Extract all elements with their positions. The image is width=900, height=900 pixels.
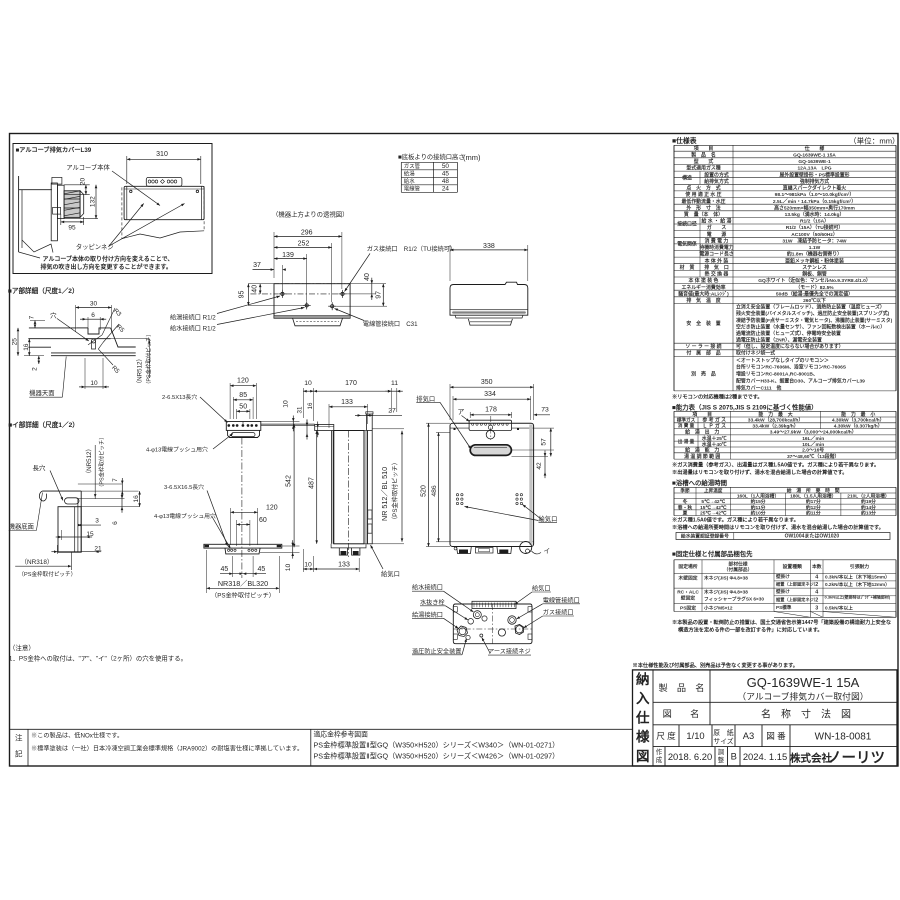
svg-text:配管カバーH33-K、据置台D30、アルコーブ排気カバーL3: 配管カバーH33-K、据置台D30、アルコーブ排気カバーL39 — [736, 378, 865, 385]
svg-text:過電流防止装置（ヒューズ式）、停電時安全装置: 過電流防止装置（ヒューズ式）、停電時安全装置 — [735, 330, 841, 337]
svg-text:2.0～16号: 2.0～16号 — [802, 447, 824, 454]
svg-text:固定場所: 固定場所 — [678, 563, 697, 570]
svg-text:2: 2 — [815, 582, 818, 588]
svg-text:2024. 1.15: 2024. 1.15 — [743, 751, 787, 762]
svg-text:296: 296 — [301, 230, 313, 237]
svg-text:40: 40 — [364, 273, 371, 281]
svg-text:構造: 構造 — [682, 174, 692, 181]
svg-text:給 湯 能 力: 給 湯 能 力 — [685, 447, 719, 454]
svg-text:機器天面: 機器天面 — [29, 388, 54, 397]
svg-text:10: 10 — [304, 561, 312, 568]
svg-text:取付けネジ袋一式: 取付けネジ袋一式 — [736, 350, 775, 357]
svg-text:項 目: 項 目 — [692, 411, 712, 418]
svg-text:製 品 名: 製 品 名 — [659, 682, 705, 693]
svg-text:（付属部品）: （付属部品） — [724, 566, 753, 573]
svg-text:6: 6 — [91, 312, 95, 319]
svg-text:A3: A3 — [743, 730, 754, 741]
svg-text:GQ-1639WE-1 15A: GQ-1639WE-1 15A — [747, 675, 860, 690]
svg-text:亜鉛メッキ鋼板・粉体塗装: 亜鉛メッキ鋼板・粉体塗装 — [785, 257, 844, 264]
svg-text:73: 73 — [541, 407, 549, 414]
svg-text:約11分: 約11分 — [751, 504, 766, 511]
svg-text:2018. 6.20: 2018. 6.20 — [668, 751, 712, 762]
svg-text:PS金枠標準設置Ⅱ型GQ（W350×H520）シリーズ＜W4: PS金枠標準設置Ⅱ型GQ（W350×H520）シリーズ＜W426＞（WN-01-… — [314, 752, 560, 761]
svg-text:型式適用ガス種: 型式適用ガス種 — [686, 165, 720, 172]
svg-text:作: 作 — [656, 747, 663, 756]
svg-text:GQ-1639WE-1 15A: GQ-1639WE-1 15A — [793, 152, 836, 158]
svg-text:16: 16 — [23, 343, 30, 351]
svg-text:消 費 電 力: 消 費 電 力 — [705, 238, 729, 245]
svg-text:B: B — [731, 751, 737, 762]
svg-text:約12分: 約12分 — [806, 504, 821, 511]
svg-text:4: 4 — [815, 575, 818, 581]
svg-text:強制排気方式: 強制排気方式 — [800, 178, 829, 185]
svg-text:50: 50 — [442, 163, 450, 170]
svg-text:構造方法を定める件の一部を改訂する件」に対応しています。: 構造方法を定める件の一部を改訂する件」に対応しています。 — [678, 626, 823, 634]
svg-text:120: 120 — [237, 378, 249, 385]
svg-text:最低作動流量・水圧: 最低作動流量・水圧 — [681, 198, 725, 205]
svg-text:GQ-1639WE-1: GQ-1639WE-1 — [798, 159, 831, 165]
svg-text:■仕様表: ■仕様表 — [672, 136, 697, 145]
svg-text:57: 57 — [540, 438, 547, 446]
svg-text:図 名: 図 名 — [663, 708, 700, 719]
svg-text:給水接続口: 給水接続口 — [412, 584, 443, 592]
svg-text:350: 350 — [481, 379, 493, 386]
svg-text:可（但し、設定温度にならない場合があります）: 可（但し、設定温度にならない場合があります） — [736, 343, 844, 350]
svg-text:16L／min: 16L／min — [802, 436, 824, 442]
svg-text:■底板よりの接続口高さ: ■底板よりの接続口高さ — [398, 152, 465, 161]
svg-text:給湯: 給湯 — [404, 169, 415, 177]
svg-text:ガス接続口 R1/2（TU接続可）: ガス接続口 R1/2（TU接続可） — [367, 245, 456, 253]
svg-text:PS標準: PS標準 — [776, 604, 792, 611]
svg-text:2-6.5X13長穴: 2-6.5X13長穴 — [162, 393, 197, 401]
svg-text:約11分: 約11分 — [806, 510, 821, 517]
svg-text:電源コード長さ: 電源コード長さ — [699, 251, 733, 258]
svg-text:95: 95 — [239, 291, 246, 299]
svg-text:13.5kg（満水時：14.0kg）: 13.5kg（満水時：14.0kg） — [785, 211, 845, 218]
svg-text:本 体 外 装: 本 体 外 装 — [705, 257, 729, 264]
svg-text:7: 7 — [29, 315, 36, 319]
svg-text:排気口: 排気口 — [416, 394, 435, 403]
svg-text:15: 15 — [86, 531, 94, 538]
svg-text:電気関係: 電気関係 — [677, 241, 697, 248]
svg-text:水温＋25℃: 水温＋25℃ — [702, 435, 727, 442]
svg-text:機器底面: 機器底面 — [9, 522, 34, 531]
svg-text:NR 512／BL 510: NR 512／BL 510 — [380, 467, 389, 521]
svg-text:252: 252 — [298, 241, 310, 248]
svg-text:0.3kN/本以上（木下地15mm）: 0.3kN/本以上（木下地15mm） — [825, 574, 890, 581]
svg-text:※浴槽への給湯所要時間はリモコンを取り付けず、湯水を混合給湯: ※浴槽への給湯所要時間はリモコンを取り付けず、湯水を混合給湯した場合の計算値です… — [672, 523, 884, 531]
svg-text:イ: イ — [544, 548, 551, 555]
svg-text:約17分: 約17分 — [806, 498, 821, 505]
svg-text:整: 整 — [718, 755, 725, 764]
svg-text:10: 10 — [285, 564, 292, 572]
svg-text:約14分: 約14分 — [861, 504, 876, 511]
svg-text:冬: 冬 — [683, 498, 688, 505]
svg-text:98.1～981kPa（1.0～10.0kgf/cm²）: 98.1～981kPa（1.0～10.0kgf/cm²） — [775, 192, 855, 198]
svg-text:サイズ: サイズ — [713, 737, 733, 746]
svg-text:1/10: 1/10 — [686, 730, 704, 741]
svg-text:2: 2 — [815, 597, 818, 603]
svg-text:給 湯 出 力: 給 湯 出 力 — [685, 429, 719, 436]
svg-text:電線管接続口: 電線管接続口 — [543, 596, 580, 604]
svg-text:6: 6 — [112, 521, 119, 525]
svg-text:アース接続ネジ: アース接続ネジ — [488, 648, 531, 656]
svg-text:本数: 本数 — [812, 563, 822, 570]
svg-text:アルコーブ本体の取り付け方向を変えることで、: アルコーブ本体の取り付け方向を変えることで、 — [43, 255, 174, 263]
svg-text:アルコーブ本体: アルコーブ本体 — [66, 163, 110, 172]
svg-text:40: 40 — [252, 285, 259, 293]
svg-text:97: 97 — [375, 291, 382, 299]
svg-text:（PS金枠取付ピッチ）: （PS金枠取付ピッチ） — [391, 459, 399, 523]
svg-text:16: 16 — [307, 402, 314, 409]
svg-text:R1/2（15A）: R1/2（15A） — [800, 219, 829, 225]
svg-text:給水装置認証登録番号: 給水装置認証登録番号 — [681, 533, 729, 540]
svg-text:AC100V（50/60Hz）: AC100V（50/60Hz） — [791, 232, 837, 238]
svg-text:48: 48 — [442, 178, 450, 185]
svg-text:能 力 最 大: 能 力 最 大 — [758, 411, 792, 418]
svg-text:37: 37 — [253, 262, 261, 269]
svg-text:点 火 方 式: 点 火 方 式 — [686, 185, 720, 192]
svg-text:(mm): (mm) — [463, 153, 481, 162]
svg-text:3.49～27.9kW（3,000～24,000kcal/h: 3.49～27.9kW（3,000～24,000kcal/h） — [770, 430, 857, 436]
svg-text:約15分: 約15分 — [751, 498, 766, 505]
svg-text:1．PS金枠への取付は、"ア"、"イ"（2ヶ所）の穴を使用す: 1．PS金枠への取付は、"ア"、"イ"（2ヶ所）の穴を使用する。 — [9, 653, 187, 662]
svg-text:待機時消費電力: 待機時消費電力 — [699, 244, 733, 251]
svg-text:4-φ13電線プッシュ用穴: 4-φ13電線プッシュ用穴 — [154, 512, 216, 520]
svg-text:給湯接続口: 給湯接続口 — [412, 611, 443, 619]
svg-text:338: 338 — [483, 243, 495, 250]
svg-text:ノーリツ: ノーリツ — [827, 751, 885, 767]
svg-text:（単位：mm）: （単位：mm） — [849, 136, 900, 146]
svg-text:※ガス種1.5A0値です。ガス種により若干異なります。: ※ガス種1.5A0値です。ガス種により若干異なります。 — [672, 516, 799, 524]
svg-text:質 量（本 体）: 質 量（本 体） — [683, 211, 723, 218]
svg-text:尺 度: 尺 度 — [656, 730, 676, 741]
svg-text:排気カバーC111 他: 排気カバーC111 他 — [736, 384, 781, 391]
svg-text:排 気 口: 排 気 口 — [704, 264, 729, 271]
svg-text:水抜き栓: 水抜き栓 — [420, 598, 445, 606]
svg-text:■固定仕様と付属部品梱包先: ■固定仕様と付属部品梱包先 — [672, 549, 753, 558]
svg-text:引張耐力: 引張耐力 — [850, 563, 869, 570]
svg-text:フィッシャープラグSX 6×30: フィッシャープラグSX 6×30 — [704, 595, 764, 602]
svg-text:■イ部詳細（尺度1／2）: ■イ部詳細（尺度1／2） — [8, 420, 79, 429]
svg-text:10: 10 — [283, 400, 290, 408]
svg-text:季節: 季節 — [680, 487, 690, 494]
svg-text:調: 調 — [718, 747, 724, 756]
svg-text:材 質: 材 質 — [680, 264, 695, 271]
svg-text:空だき防止装置（水量センサ）、ファン回転数検出装置（ホールI: 空だき防止装置（水量センサ）、ファン回転数検出装置（ホールIC） — [736, 323, 885, 330]
svg-text:0.3kN以上(壁掛時はﾌﾟﾗｸﾞ+補強部材): 0.3kN以上(壁掛時はﾌﾟﾗｸﾞ+補強部材) — [825, 594, 891, 600]
svg-text:原 紙: 原 紙 — [713, 728, 734, 737]
svg-text:ガス接続口: ガス接続口 — [543, 609, 574, 617]
svg-text:過電圧防止装置（ZNR）、漏電安全装置: 過電圧防止装置（ZNR）、漏電安全装置 — [735, 337, 822, 344]
svg-text:消 費 量: 消 費 量 — [678, 422, 695, 429]
svg-text:参 考 ガ ス: 参 考 ガ ス — [702, 417, 726, 424]
svg-text:※標準塗装は（一社）日本冷凍空調工業会標準規格（JRA900: ※標準塗装は（一社）日本冷凍空調工業会標準規格（JRA9002）の耐塩害仕様に準… — [31, 745, 303, 753]
svg-text:（モード）82.5%: （モード）82.5% — [795, 285, 834, 291]
svg-text:45: 45 — [221, 566, 229, 573]
svg-text:※リモコンの対応機種は2種までです。: ※リモコンの対応機種は2種までです。 — [672, 392, 763, 400]
svg-text:15℃→42℃: 15℃→42℃ — [700, 504, 727, 511]
svg-text:（注意）: （注意） — [9, 643, 35, 652]
svg-text:542: 542 — [286, 475, 293, 487]
svg-text:記: 記 — [15, 749, 23, 759]
svg-text:1.1W: 1.1W — [809, 245, 821, 251]
svg-text:■浴槽への給湯時間: ■浴槽への給湯時間 — [672, 478, 727, 487]
svg-text:入: 入 — [636, 691, 650, 706]
svg-text:（PS金枠取付ピッチ）: （PS金枠取付ピッチ） — [211, 591, 275, 599]
svg-text:（NR512）: （NR512） — [137, 355, 144, 387]
svg-text:33.4kW（2.39kg/h）: 33.4kW（2.39kg/h） — [752, 424, 798, 430]
svg-text:設置の方式: 設置の方式 — [704, 171, 729, 178]
svg-text:給水接続口 R1/2: 給水接続口 R1/2 — [170, 324, 216, 332]
svg-text:31W 凍結予防ヒータ：74W: 31W 凍結予防ヒータ：74W — [782, 238, 847, 245]
svg-text:20: 20 — [79, 178, 86, 186]
svg-text:27: 27 — [388, 408, 396, 415]
svg-text:170: 170 — [345, 380, 357, 387]
svg-text:能 力 最 小: 能 力 最 小 — [841, 411, 875, 418]
svg-text:50dB（給湯:最優先全での測定値）: 50dB（給湯:最優先全での測定値） — [776, 290, 853, 297]
svg-text:ソ ー ラ ー 接 続: ソ ー ラ ー 接 続 — [685, 343, 721, 350]
svg-text:85: 85 — [239, 392, 247, 399]
svg-text:壁掛け: 壁掛け — [776, 573, 790, 580]
svg-text:出 湯 量: 出 湯 量 — [678, 438, 695, 445]
svg-text:0.5kN/本以上: 0.5kN/本以上 — [825, 604, 853, 611]
svg-text:※本仕様性能及び付属部品、別売品は予告なく変更する事がありま: ※本仕様性能及び付属部品、別売品は予告なく変更する事があります。 — [633, 661, 798, 669]
svg-text:据置（上部固定ネジ）: 据置（上部固定ネジ） — [776, 596, 818, 603]
svg-text:給気口: 給気口 — [381, 569, 400, 578]
svg-text:（アルコーブ排気カバー取付図）: （アルコーブ排気カバー取付図） — [737, 691, 868, 702]
svg-text:10: 10 — [304, 380, 312, 387]
svg-text:33.4kW（28,700kcal/h）: 33.4kW（28,700kcal/h） — [748, 418, 803, 424]
svg-text:24: 24 — [442, 185, 450, 192]
svg-text:Ｌ Ｐ ガ ス: Ｌ Ｐ ガ ス — [702, 423, 726, 430]
svg-text:使 用 適 正 水 圧: 使 用 適 正 水 圧 — [684, 191, 721, 198]
svg-text:■能力表（JIS S 2075,JIS S 2109に基づく: ■能力表（JIS S 2075,JIS S 2109に基づく性能値） — [672, 402, 818, 411]
svg-text:約1.8m（機器右側寄り）: 約1.8m（機器右側寄り） — [787, 251, 842, 258]
svg-text:過圧防止安全装置: 過圧防止安全装置 — [412, 647, 462, 655]
svg-text:約13分: 約13分 — [861, 510, 876, 517]
svg-text:納: 納 — [636, 671, 650, 687]
svg-text:給 湯 所 要 時 間: 給 湯 所 要 時 間 — [787, 487, 840, 494]
svg-text:（PS金枠取付ピッチ）: （PS金枠取付ピッチ） — [145, 331, 153, 387]
svg-text:上昇温度: 上昇温度 — [704, 487, 723, 494]
svg-text:穴: 穴 — [50, 311, 57, 320]
svg-text:長穴: 長穴 — [33, 463, 47, 472]
svg-text:（NR318）: （NR318） — [21, 558, 54, 566]
svg-text:10: 10 — [90, 380, 98, 387]
svg-text:R1/2（15A）（TU接続可）: R1/2（15A）（TU接続可） — [786, 224, 844, 231]
svg-text:小ネジM5×12: 小ネジM5×12 — [703, 604, 733, 611]
svg-text:GQホワイト（近似色：マンセルNo.9.3YR8.4/1.0: GQホワイト（近似色：マンセルNo.9.3YR8.4/1.0） — [758, 277, 871, 284]
svg-text:（PS金枠取付ピッチ）: （PS金枠取付ピッチ） — [98, 434, 106, 490]
svg-text:486: 486 — [431, 485, 438, 497]
svg-text:■ア部詳細（尺度1／2）: ■ア部詳細（尺度1／2） — [8, 286, 79, 295]
svg-text:電線管: 電線管 — [404, 184, 421, 192]
svg-text:増設リモコンRC-8001A,RC-8001B、: 増設リモコンRC-8001A,RC-8001B、 — [736, 371, 818, 378]
svg-text:487: 487 — [309, 477, 316, 489]
svg-text:高さ520mm×幅350mm×奥行170mm: 高さ520mm×幅350mm×奥行170mm — [774, 204, 855, 211]
svg-text:ア: ア — [458, 408, 465, 416]
svg-text:210L（2人用浴槽）: 210L（2人用浴槽） — [847, 493, 889, 500]
svg-text:520: 520 — [421, 485, 428, 497]
svg-text:4-φ13電線プッシュ用穴: 4-φ13電線プッシュ用穴 — [146, 446, 208, 454]
svg-text:湯 温 調 節 範 囲: 湯 温 調 節 範 囲 — [684, 453, 720, 460]
svg-text:※この製品は、低NOx仕様です。: ※この製品は、低NOx仕様です。 — [31, 732, 123, 740]
svg-text:外 形 寸 法: 外 形 寸 法 — [685, 204, 720, 211]
svg-text:PS金枠標準設置Ⅱ型GQ（W350×H520）シリーズ＜W3: PS金枠標準設置Ⅱ型GQ（W350×H520）シリーズ＜W340＞（WN-01-… — [314, 741, 560, 750]
svg-text:凍結予防装置(F点サーミスタ・電気ヒータ)、沸騰防止装置(サ: 凍結予防装置(F点サーミスタ・電気ヒータ)、沸騰防止装置(サーミスタ) — [736, 317, 893, 324]
svg-text:334: 334 — [484, 391, 496, 398]
svg-text:7: 7 — [112, 478, 119, 482]
svg-text:12A,13A LPG: 12A,13A LPG — [797, 166, 831, 172]
svg-text:180L（1.5人用浴槽）: 180L（1.5人用浴槽） — [790, 493, 836, 500]
svg-text:夏: 夏 — [682, 510, 688, 517]
svg-text:0.2kN/本以上（木下地12mm）: 0.2kN/本以上（木下地12mm） — [825, 581, 890, 588]
svg-text:仕: 仕 — [635, 709, 650, 725]
svg-text:付 属 部 品: 付 属 部 品 — [686, 350, 720, 357]
svg-text:成: 成 — [656, 755, 663, 764]
svg-text:OW1004またはOW1020: OW1004またはOW1020 — [785, 533, 840, 540]
svg-text:■アルコーブ排気カバーL39: ■アルコーブ排気カバーL39 — [16, 146, 92, 154]
svg-text:WN-18-0081: WN-18-0081 — [815, 732, 872, 743]
svg-text:120: 120 — [266, 505, 278, 512]
svg-text:PS固定: PS固定 — [680, 604, 696, 611]
svg-text:排気の吹き出し方向を変更することができます。: 排気の吹き出し方向を変更することができます。 — [41, 263, 172, 271]
svg-text:排 気 温 度: 排 気 温 度 — [686, 297, 720, 304]
svg-text:熱 交 換 器: 熱 交 換 器 — [705, 271, 729, 278]
svg-text:木壁固定: 木壁固定 — [677, 575, 697, 582]
svg-text:適応金枠参考図面: 適応金枠参考図面 — [314, 730, 369, 739]
svg-text:50: 50 — [239, 403, 247, 410]
svg-text:給気口: 給気口 — [532, 585, 551, 593]
svg-text:NR318／BL320: NR318／BL320 — [218, 579, 268, 588]
svg-text:給 水 ・ 給 湯: 給 水 ・ 給 湯 — [702, 218, 732, 225]
svg-text:直継スパークダイレクト着火: 直継スパークダイレクト着火 — [783, 185, 846, 192]
svg-text:騒音値(最大時:ALﾚﾝｼﾞ): 騒音値(最大時:ALﾚﾝｼﾞ) — [677, 290, 729, 297]
svg-text:部材仕様: 部材仕様 — [728, 560, 747, 567]
svg-text:RC・ALC: RC・ALC — [677, 590, 699, 596]
svg-text:名 称 寸 法 図: 名 称 寸 法 図 — [761, 708, 851, 721]
svg-text:132: 132 — [90, 196, 97, 207]
svg-text:給湯接続口 R1/2: 給湯接続口 R1/2 — [170, 313, 216, 321]
svg-text:注: 注 — [15, 733, 23, 743]
svg-text:139: 139 — [282, 252, 294, 259]
svg-text:60: 60 — [259, 517, 267, 524]
svg-text:4.30kW（0.307kg/h）: 4.30kW（0.307kg/h） — [834, 424, 883, 430]
svg-text:設置種類: 設置種類 — [783, 563, 802, 570]
svg-text:260℃以下: 260℃以下 — [803, 297, 826, 304]
svg-text:本 体 塗 装 色: 本 体 塗 装 色 — [689, 277, 719, 284]
svg-text:16: 16 — [133, 495, 140, 503]
svg-text:133: 133 — [341, 399, 353, 406]
svg-text:（NR512）: （NR512） — [86, 445, 93, 477]
svg-text:45: 45 — [442, 170, 450, 177]
svg-text:42: 42 — [536, 462, 543, 470]
svg-text:残火安全装置(バイメタルスイッチ)、過圧防止安全装置(スプリ: 残火安全装置(バイメタルスイッチ)、過圧防止安全装置(スプリング式) — [736, 310, 890, 317]
svg-text:※出湯量はリモコンを取り付けず、湯水を混合給湯した場合の計算: ※出湯量はリモコンを取り付けず、湯水を混合給湯した場合の計算値です。 — [672, 468, 848, 476]
svg-text:4: 4 — [815, 590, 818, 596]
svg-text:木ネジ(JIS) Φ4.8×38: 木ネジ(JIS) Φ4.8×38 — [703, 575, 748, 582]
svg-text:10L／min: 10L／min — [802, 442, 824, 448]
svg-text:2.5L／min・14.7kPa（0.15kgf/cm²）: 2.5L／min・14.7kPa（0.15kgf/cm²） — [773, 199, 856, 205]
svg-text:電線管接続口 C31: 電線管接続口 C31 — [363, 320, 418, 328]
svg-text:25℃→42℃: 25℃→42℃ — [700, 510, 727, 517]
svg-text:45: 45 — [258, 566, 266, 573]
svg-text:別 売 品: 別 売 品 — [690, 370, 716, 377]
svg-text:給水: 給水 — [404, 177, 415, 185]
svg-text:立消え安全装置（フレームロッド）、過熱防止装置（温度ヒューズ: 立消え安全装置（フレームロッド）、過熱防止装置（温度ヒューズ） — [736, 304, 885, 311]
svg-text:4.30kW（3,700kcal/h）: 4.30kW（3,700kcal/h） — [832, 418, 885, 424]
svg-text:3: 3 — [95, 518, 99, 525]
svg-text:31: 31 — [297, 406, 304, 413]
svg-text:壁掛け: 壁掛け — [776, 588, 790, 595]
svg-text:11: 11 — [391, 380, 398, 387]
svg-text:給気口: 給気口 — [539, 514, 558, 523]
svg-text:133: 133 — [338, 561, 350, 568]
svg-text:ステンレス: ステンレス — [802, 265, 827, 271]
svg-text:37～48,60℃（13段階）: 37～48,60℃（13段階） — [787, 453, 839, 460]
svg-text:タッピンネジ: タッピンネジ — [76, 242, 114, 251]
svg-text:製 品 名: 製 品 名 — [690, 151, 716, 158]
svg-text:様: 様 — [636, 729, 650, 745]
svg-text:木ネジ(JIS) Φ4.8×38: 木ネジ(JIS) Φ4.8×38 — [703, 589, 748, 596]
svg-text:※ガス消費量（参考ガス）、出湯量はガス種1.5A0値です。ガ: ※ガス消費量（参考ガス）、出湯量はガス種1.5A0値です。ガス種により若干異なり… — [672, 461, 879, 469]
svg-text:95: 95 — [68, 225, 76, 232]
svg-text:※本製品の設置・転倒防止の措置は、国土交通省告示第1447号: ※本製品の設置・転倒防止の措置は、国土交通省告示第1447号「建築設備の構造耐力… — [672, 618, 891, 626]
svg-text:5℃→42℃: 5℃→42℃ — [701, 498, 725, 505]
svg-text:160L（1人用浴槽）: 160L（1人用浴槽） — [737, 493, 779, 500]
svg-text:ガ ス: ガ ス — [707, 224, 727, 231]
svg-text:安 全 装 置: 安 全 装 置 — [686, 320, 720, 327]
svg-text:（PS金枠取付ピッチ）: （PS金枠取付ピッチ） — [18, 570, 76, 578]
svg-text:約19分: 約19分 — [861, 498, 876, 505]
svg-text:壁固定: 壁固定 — [681, 594, 696, 601]
svg-text:接続口径: 接続口径 — [677, 221, 697, 228]
svg-text:310: 310 — [156, 151, 168, 158]
svg-text:（機器上方よりの透視図）: （機器上方よりの透視図） — [272, 210, 349, 219]
svg-text:図 番: 図 番 — [766, 730, 786, 741]
svg-text:ガス管: ガス管 — [404, 162, 421, 170]
svg-text:2: 2 — [32, 367, 39, 371]
svg-text:3-6.5X16.5長穴: 3-6.5X16.5長穴 — [164, 483, 204, 491]
svg-text:据置（上部固定ネジ）: 据置（上部固定ネジ） — [776, 581, 818, 588]
svg-text:水温＋40℃: 水温＋40℃ — [702, 441, 727, 448]
svg-text:屋外設置壁掛形・PS標準設置形: 屋外設置壁掛形・PS標準設置形 — [779, 171, 849, 178]
svg-text:3: 3 — [815, 605, 818, 611]
svg-text:25: 25 — [12, 338, 19, 346]
svg-text:図: 図 — [636, 749, 650, 764]
svg-text:エネルギー消費効率: エネルギー消費効率 — [681, 284, 725, 291]
svg-text:電 源: 電 源 — [707, 231, 727, 238]
svg-text:30: 30 — [90, 301, 98, 308]
svg-text:＜オートストップなしタイプのリモコン＞: ＜オートストップなしタイプのリモコン＞ — [736, 357, 829, 364]
svg-text:約10分: 約10分 — [751, 510, 766, 517]
svg-text:銅板、銅管: 銅板、銅管 — [802, 271, 827, 278]
svg-text:型 式: 型 式 — [694, 158, 714, 165]
svg-text:178: 178 — [485, 407, 497, 414]
svg-text:台所リモコンRC-7606M、浴室リモコンRC-7606S: 台所リモコンRC-7606M、浴室リモコンRC-7606S — [736, 364, 847, 371]
svg-text:21: 21 — [94, 546, 102, 553]
svg-text:春・秋: 春・秋 — [678, 504, 693, 511]
svg-text:給排気方式: 給排気方式 — [704, 178, 729, 185]
